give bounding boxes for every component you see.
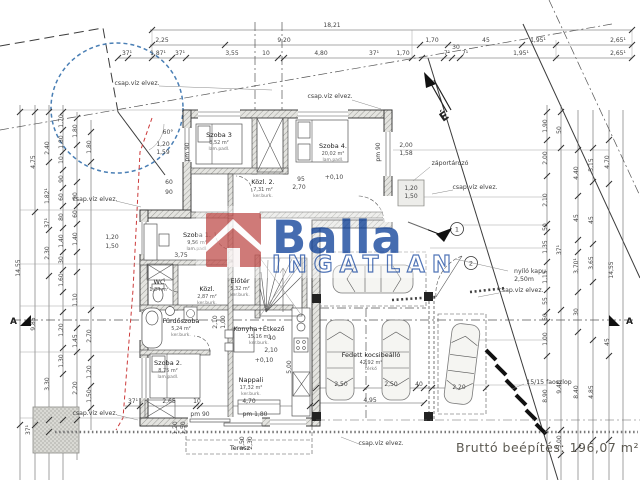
dim-label: 1,40 <box>72 232 79 246</box>
svg-text:Fürdőszoba: Fürdőszoba <box>162 316 199 325</box>
svg-text:térkő: térkő <box>365 365 377 372</box>
car <box>326 320 354 400</box>
bent-boundary <box>0 28 118 112</box>
dim-label: 2,10 <box>542 193 549 207</box>
svg-text:ker.burk.: ker.burk. <box>197 300 217 306</box>
marker-1: 1 <box>455 226 459 234</box>
room-label-szoba3: Szoba 38,52 m²lam.padl. <box>206 131 232 152</box>
section-label-left: A <box>10 317 17 327</box>
dim-label: 30 <box>573 308 580 316</box>
svg-text:ker.burk.: ker.burk. <box>249 340 269 346</box>
svg-text:8,75 m²: 8,75 m² <box>158 368 178 374</box>
gross-area-label: Bruttó beépítés: 196,07 m² <box>456 440 639 455</box>
dim-label: 18,21 <box>323 22 340 29</box>
dim-label: 1,20 <box>404 185 418 192</box>
dim-label: 1,50 <box>239 436 246 450</box>
north-label: É <box>436 107 451 124</box>
dim-label: 5,00 <box>556 435 563 449</box>
section-label-right: A <box>626 317 633 327</box>
dim-label: 1,95¹ <box>530 37 546 44</box>
svg-text:Nappali: Nappali <box>239 376 264 384</box>
leader-line <box>478 293 499 297</box>
fence-posts-15-15 <box>486 350 546 434</box>
dim-label: 9,85 <box>30 317 37 331</box>
dim-label: 4,70 <box>242 398 256 405</box>
dim-label: 37¹ <box>556 244 563 255</box>
storm-label: záportározó <box>432 159 469 167</box>
dim-label: 37¹ <box>122 50 133 57</box>
dim-label: 1,35 <box>542 240 549 254</box>
svg-text:1,34 m²: 1,34 m² <box>149 287 169 293</box>
dim-label: 95 <box>297 176 305 183</box>
dim-label: 4,85 <box>588 385 595 399</box>
dim-label: 2,70 <box>292 184 306 191</box>
window <box>198 109 240 119</box>
dim-label: 1,20 <box>58 323 65 337</box>
floor-plan-drawing: É A A 1 2 Szoba 38,52 m²lam.padl. Szoba … <box>0 0 640 480</box>
drain-label: csap.víz elvez. <box>307 92 352 100</box>
dim-label: 2,50 <box>384 381 398 388</box>
dim-label: 1,60 <box>58 273 65 287</box>
dim-label: 9,20 <box>277 37 291 44</box>
svg-text:ker.burk.: ker.burk. <box>230 292 250 298</box>
dim-label: 9,40 <box>556 380 563 394</box>
dim-label: 1,80 <box>72 124 79 138</box>
svg-text:42,92 m²: 42,92 m² <box>360 360 383 366</box>
room-label-furdoszoba: Fürdőszoba5,24 m²ker.burk. <box>162 316 199 338</box>
dim-label: 4,80 <box>314 50 328 57</box>
dim-label: +0,10 <box>325 174 344 181</box>
dim-label: 1,40 <box>58 234 65 248</box>
post <box>312 412 321 421</box>
north-arrow: É <box>424 72 451 124</box>
bathtub <box>142 308 162 348</box>
dim-label: +0,10 <box>255 357 274 364</box>
dim-label: 1,70 <box>425 37 439 44</box>
dim-label: 4,75 <box>30 155 37 169</box>
dim-label: 2,30 <box>247 436 254 450</box>
post <box>424 292 433 301</box>
dim-label: 45 <box>573 214 580 222</box>
dim-label: 2,65¹ <box>610 37 626 44</box>
dim-label: 60 <box>58 193 65 201</box>
drain-label: csap.víz elvez. <box>72 195 117 203</box>
window <box>383 132 393 176</box>
dim-label: 4,70 <box>604 155 611 169</box>
dim-label: 37¹ <box>44 217 51 228</box>
dim-label: 1,50 <box>105 243 119 250</box>
drain-label: csap.víz elvez. <box>498 286 543 294</box>
window <box>298 109 348 119</box>
dim-label: 55 <box>542 297 549 305</box>
dim-label: 60 <box>72 210 79 218</box>
dim-tick <box>483 385 489 391</box>
dim-label: 45 <box>604 338 611 346</box>
svg-text:2,87 m²: 2,87 m² <box>197 294 217 300</box>
dim-label: 2,10 <box>264 347 278 354</box>
watermark-word2: INGATLAN <box>272 252 458 278</box>
dim-label: 50 <box>556 126 563 134</box>
floor-plan-page: É A A 1 2 Szoba 38,52 m²lam.padl. Szoba … <box>0 0 640 480</box>
dim-label: 60° <box>163 129 174 136</box>
dim-label: 2,70 <box>86 329 93 343</box>
dim-label: 1,00 <box>220 315 227 329</box>
dim-label: 90 <box>165 189 173 196</box>
car <box>443 323 481 406</box>
dim-label: 4,95 <box>363 397 377 404</box>
dim-label: 1,90 <box>542 119 549 133</box>
dim-label: 2,65¹ <box>610 50 626 57</box>
dim-label: 90 <box>58 175 65 183</box>
kitchen-counter <box>292 308 310 416</box>
posts-label: 15/15 faoszlop <box>526 379 572 386</box>
dim-label: 5,00 <box>286 360 293 374</box>
room-label-szoba2: Szoba 2.8,75 m²lam.padl. <box>154 359 182 380</box>
dim-label: 1,15 <box>542 270 549 284</box>
sliding-door <box>188 417 262 427</box>
door-arc <box>236 176 252 192</box>
dim-label: 3,65 <box>588 256 595 270</box>
dim-label: 2,50 <box>334 381 348 388</box>
svg-text:Szoba 2.: Szoba 2. <box>154 359 182 367</box>
dim-label: 3,30 <box>44 377 51 391</box>
dim-label: 1,00 <box>542 332 549 346</box>
dim-label: 2,25 <box>155 37 169 44</box>
dim-label: 45 <box>588 216 595 224</box>
dim-label: 3,70¹ <box>573 258 580 274</box>
drain-label: csap.víz elvez. <box>114 79 159 87</box>
svg-text:Szoba 4.: Szoba 4. <box>319 142 347 150</box>
svg-text:Szoba 3: Szoba 3 <box>206 131 232 139</box>
svg-text:lam.padl.: lam.padl. <box>158 374 179 380</box>
dim-label: 1,50 <box>404 193 418 200</box>
dim-label: 1,30 <box>58 354 65 368</box>
post <box>312 294 321 303</box>
dim-label: 45 <box>482 37 490 44</box>
dim-label: 37¹ <box>369 50 380 57</box>
dim-label: 3,55 <box>225 50 239 57</box>
dim-label: pm 90 <box>184 142 191 161</box>
dim-label: 8,90 <box>542 389 549 403</box>
room-label-szoba4: Szoba 4.20,02 m²lam.padl. <box>319 142 347 163</box>
drain-label: csap.víz elvez. <box>72 409 117 417</box>
dim-label: 7¹ <box>462 50 469 57</box>
dim-label: 2,40 <box>44 141 51 155</box>
dim-label: 1,87¹ <box>150 50 166 57</box>
dim-label: 1,10 <box>72 293 79 307</box>
svg-text:ker.burk.: ker.burk. <box>171 332 191 338</box>
window <box>270 417 306 427</box>
svg-text:WC: WC <box>154 278 165 286</box>
dim-label: 80 <box>58 213 65 221</box>
dim-label: 1,20 <box>172 421 179 435</box>
svg-text:7,31 m²: 7,31 m² <box>253 187 273 193</box>
post <box>424 412 433 421</box>
dim-label: 1,95¹ <box>513 50 529 57</box>
dim-label: 7¹ <box>444 50 451 57</box>
window <box>139 358 149 398</box>
dim-label: 1,80 <box>58 135 65 149</box>
dim-label: 2,20 <box>72 381 79 395</box>
dim-label: 10 <box>262 50 270 57</box>
svg-text:ker.burk.: ker.burk. <box>253 193 273 199</box>
dim-label: 30 <box>58 256 65 264</box>
svg-text:ker.burk.: ker.burk. <box>241 391 261 397</box>
room-label-nappali: Nappali17,32 m²ker.burk. <box>239 376 264 397</box>
dim-label: 4,40 <box>573 166 580 180</box>
dim-label: 14,55 <box>608 261 615 278</box>
dim-label: pm 1,80 <box>243 411 268 418</box>
carport <box>312 252 640 434</box>
svg-text:Fedett kocsibeálló: Fedett kocsibeálló <box>342 351 401 359</box>
svg-text:lam.padl.: lam.padl. <box>323 157 344 163</box>
dim-label: 37¹ <box>25 424 32 435</box>
svg-text:Közl. 2.: Közl. 2. <box>251 178 274 186</box>
room-label-eloter: Előtér5,32 m²ker.burk. <box>230 276 250 298</box>
dim-label: 1,45 <box>72 334 79 348</box>
dim-label: 2,00 <box>542 151 549 165</box>
dim-label: 2,30 <box>44 246 51 260</box>
leader-line <box>341 437 359 444</box>
dim-label: 2,20 <box>452 384 466 391</box>
car <box>382 320 410 400</box>
dim-label: 2,10 <box>212 315 219 329</box>
room-label-kozl2: Közl. 2.7,31 m²ker.burk. <box>251 178 274 199</box>
dim-label: 10 <box>58 156 65 164</box>
leader-line <box>352 100 381 109</box>
room-label-kozl: Közl.2,87 m²ker.burk. <box>197 285 217 306</box>
dim-label: 1,70 <box>396 50 410 57</box>
drain-label: csap.víz elvez. <box>358 439 403 447</box>
svg-text:5,24 m²: 5,24 m² <box>171 326 191 332</box>
dim-label: 10 <box>193 398 201 405</box>
dim-label: 1,20 <box>86 365 93 379</box>
dim-label: 14,55 <box>15 259 22 276</box>
section-markers: A A <box>10 315 633 327</box>
gate-size: 2,50m <box>514 276 534 283</box>
svg-text:Közl.: Közl. <box>199 285 214 293</box>
svg-text:5,32 m²: 5,32 m² <box>230 286 250 292</box>
dim-label: 40 <box>268 335 276 342</box>
dim-label: pm 90 <box>375 142 382 161</box>
dim-label: 1,80 <box>86 140 93 154</box>
desk-chair <box>144 224 169 260</box>
dim-label: 60 <box>165 179 173 186</box>
dim-label: 1,82¹ <box>44 188 51 204</box>
svg-text:20,02 m²: 20,02 m² <box>322 151 345 157</box>
drain-label: csap.víz elvez. <box>452 183 497 191</box>
leader-line <box>432 190 453 194</box>
svg-text:15,16 m²: 15,16 m² <box>248 334 271 340</box>
dim-label: 1,70 <box>58 114 65 128</box>
dim-label: 3,75 <box>174 252 188 259</box>
dim-label: 37¹ <box>175 50 186 57</box>
pantry-unit <box>293 372 310 396</box>
entrance-arrow <box>436 228 452 242</box>
svg-text:17,32 m²: 17,32 m² <box>240 385 263 391</box>
watermark-logo-icon <box>206 213 261 267</box>
dim-label: 1,20 <box>105 234 119 241</box>
dim-label: 1,58 <box>399 150 413 157</box>
leader-line <box>117 415 138 420</box>
dim-label: 8,40 <box>573 385 580 399</box>
dim-label: 1,20 <box>156 141 170 148</box>
dim-label: 2,65 <box>162 398 176 405</box>
svg-text:8,52 m²: 8,52 m² <box>209 140 229 146</box>
dim-label: 2,00 <box>399 142 413 149</box>
svg-text:Konyha+Étkező: Konyha+Étkező <box>233 324 284 333</box>
dim-label: 5,15 <box>588 158 595 172</box>
marker-2: 2 <box>469 260 473 268</box>
svg-text:lam.padl.: lam.padl. <box>209 146 230 152</box>
dim-label: 30 <box>452 44 460 51</box>
watermark: Balla INGATLAN <box>196 206 458 278</box>
shaft-x <box>257 118 283 172</box>
dim-label: 1,50 <box>86 389 93 403</box>
dim-label: 1,59 <box>156 149 170 156</box>
door-arc <box>194 336 210 352</box>
dim-label: pm 90 <box>190 411 209 418</box>
dim-label: 50 <box>542 223 549 231</box>
dim-label: 1,50 <box>180 421 187 435</box>
